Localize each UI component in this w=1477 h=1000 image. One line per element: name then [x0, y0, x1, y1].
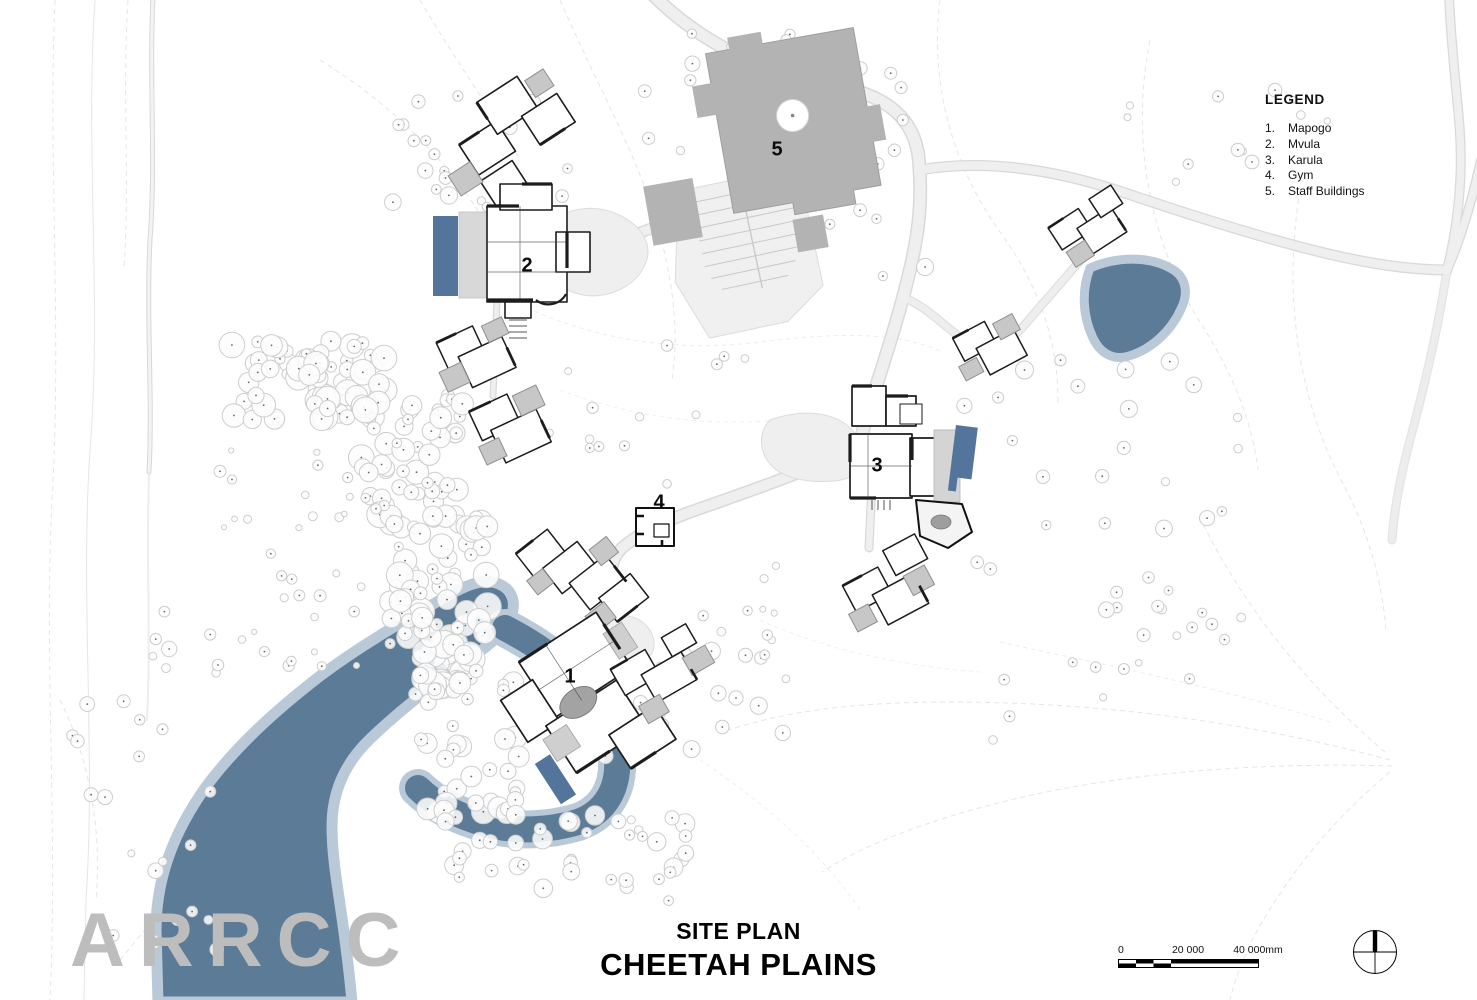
legend-item-label: Mapogo	[1288, 121, 1331, 137]
scale-bar-graphic	[1116, 957, 1262, 971]
legend-item-karula: 3. Karula	[1265, 153, 1365, 169]
north-arrow-icon	[1351, 927, 1399, 977]
villa-cluster-b	[463, 381, 560, 470]
legend-item-gym: 4. Gym	[1265, 168, 1365, 184]
legend-item-number: 3.	[1265, 153, 1288, 169]
scale-label-mid: 20 000	[1172, 944, 1204, 956]
buildings	[423, 14, 1138, 811]
legend-item-label: Gym	[1288, 168, 1313, 184]
villa-cluster-d	[830, 534, 947, 639]
legend-item-number: 1.	[1265, 121, 1288, 137]
scale-label-zero: 0	[1118, 944, 1124, 956]
marker-gym: 4	[653, 492, 664, 515]
karula-apron	[761, 413, 863, 481]
legend-item-number: 5.	[1265, 184, 1288, 200]
marker-karula: 3	[871, 455, 882, 478]
legend-item-number: 2.	[1265, 137, 1288, 153]
legend-item-label: Mvula	[1288, 137, 1320, 153]
legend-item-label: Karula	[1288, 153, 1323, 169]
marker-mapogo: 1	[564, 666, 575, 689]
site-plan-page: 1 2 3 4 5 LEGEND 1. Mapogo 2. Mvula 3. K…	[0, 0, 1477, 1000]
legend-item-mapogo: 1. Mapogo	[1265, 121, 1365, 137]
pond	[1084, 259, 1185, 357]
legend-title: LEGEND	[1265, 92, 1365, 107]
legend-item-label: Staff Buildings	[1288, 184, 1365, 200]
marker-staff: 5	[771, 139, 782, 162]
building-staff-buildings	[643, 14, 896, 343]
legend-item-staff-buildings: 5. Staff Buildings	[1265, 184, 1365, 200]
legend-item-mvula: 2. Mvula	[1265, 137, 1365, 153]
drawing-subtitle: SITE PLAN	[0, 918, 1477, 945]
mvula-pool	[433, 216, 458, 296]
legend: LEGEND 1. Mapogo 2. Mvula 3. Karula 4. G…	[1265, 92, 1365, 200]
scale-label-end: 40 000mm	[1233, 944, 1283, 956]
site-plan-map	[0, 0, 1477, 1000]
villa-cluster-a	[427, 313, 523, 398]
marker-mvula: 2	[521, 255, 532, 278]
scale-bar: 0 20 000 40 000mm	[1118, 944, 1298, 974]
access-track	[147, 0, 153, 720]
legend-item-number: 4.	[1265, 168, 1288, 184]
